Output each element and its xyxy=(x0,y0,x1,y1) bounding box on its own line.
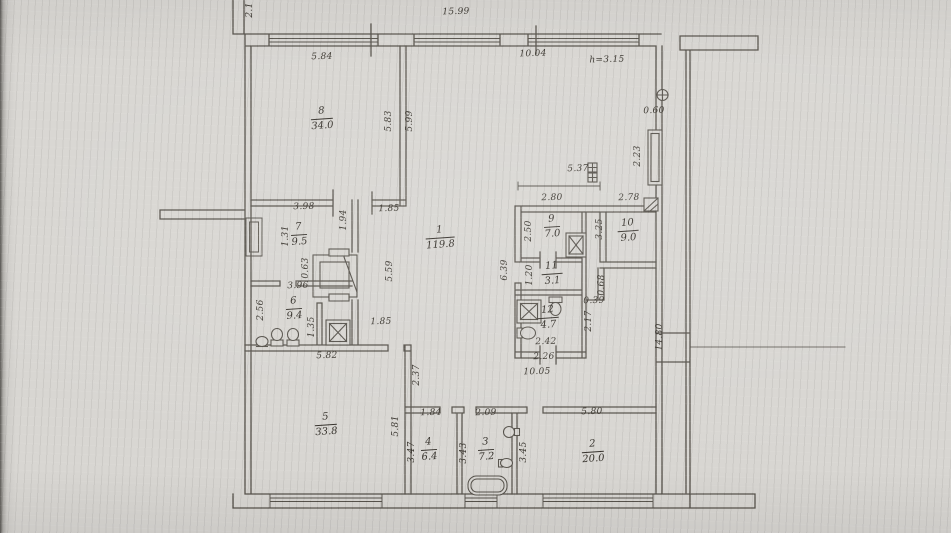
dimension-label: 2.56 xyxy=(256,299,266,320)
room-number: 3 xyxy=(477,437,494,451)
dimension-label: 3.45 xyxy=(519,441,529,462)
dimension-label: 2.26 xyxy=(533,352,555,363)
dimension-label: 1.20 xyxy=(525,264,535,285)
dimension-label: 6.39 xyxy=(500,259,510,280)
dimension-label: 1.31 xyxy=(281,225,291,246)
floorplan-page: 15.992.15.8410.04h=3.150.605.835.992.235… xyxy=(0,0,951,533)
dimension-label: 10.04 xyxy=(519,49,547,60)
labels-layer: 15.992.15.8410.04h=3.150.605.835.992.235… xyxy=(0,0,951,533)
dimension-label: 5.84 xyxy=(311,52,333,63)
room-area: 33.8 xyxy=(315,424,338,438)
room-area: 9.4 xyxy=(286,308,303,322)
dimension-label: 5.83 xyxy=(384,110,394,131)
room-area: 6.4 xyxy=(421,449,438,463)
room-label-1: 1119.8 xyxy=(425,225,455,252)
dimension-label: 1.94 xyxy=(339,209,349,230)
room-label-5: 533.8 xyxy=(314,412,338,438)
dimension-label: 1.85 xyxy=(370,317,392,328)
room-area: 9.0 xyxy=(618,230,640,244)
room-label-6: 69.4 xyxy=(285,296,303,322)
room-label-4: 46.4 xyxy=(420,437,438,463)
room-label-3: 37.2 xyxy=(477,437,495,463)
dimension-label: 1.84 xyxy=(420,408,442,419)
room-area: 34.0 xyxy=(311,118,334,132)
dimension-label: 10.05 xyxy=(523,367,551,378)
dimension-label: 0.39 xyxy=(583,296,605,307)
dimension-label: 1.35 xyxy=(307,316,317,337)
room-label-11: 113.1 xyxy=(541,261,563,287)
room-label-8: 834.0 xyxy=(310,106,334,132)
dimension-label: 2.09 xyxy=(475,408,497,419)
dimension-label: 3.98 xyxy=(293,202,315,213)
dimension-label: h=3.15 xyxy=(589,55,624,66)
room-area: 119.8 xyxy=(426,237,455,251)
dimension-label: 2.1 xyxy=(245,2,255,17)
room-number: 7 xyxy=(290,222,307,236)
room-area: 7.2 xyxy=(478,449,495,463)
room-area: 4.7 xyxy=(538,317,560,331)
room-area: 3.1 xyxy=(542,273,564,287)
dimension-label: 3.47 xyxy=(407,441,417,462)
room-number: 6 xyxy=(285,296,302,310)
room-number: 4 xyxy=(420,437,437,451)
room-area: 20.0 xyxy=(582,451,605,465)
dimension-label: 5.37 xyxy=(567,164,589,175)
room-label-12: 124.7 xyxy=(537,305,559,331)
dimension-label: 3.96 xyxy=(287,281,309,292)
dimension-label: 2.78 xyxy=(618,193,640,204)
dimension-label: 3.25 xyxy=(595,218,605,239)
dimension-label: 2.23 xyxy=(633,145,643,166)
dimension-label: 5.80 xyxy=(581,407,603,418)
room-area: 7.0 xyxy=(544,226,561,240)
dimension-label: 14.80 xyxy=(655,323,665,350)
dimension-label: 0.60 xyxy=(643,106,665,117)
dimension-label: 2.42 xyxy=(535,337,557,348)
dimension-label: 1.85 xyxy=(378,204,400,215)
room-label-7: 79.5 xyxy=(290,222,308,248)
room-area: 9.5 xyxy=(291,234,308,248)
room-label-10: 109.0 xyxy=(617,218,639,244)
dimension-label: 5.99 xyxy=(405,110,415,131)
dimension-label: 5.59 xyxy=(385,260,395,281)
dimension-label: 2.37 xyxy=(412,364,422,385)
dimension-label: 0.68 xyxy=(597,274,607,295)
dimension-label: 2.50 xyxy=(524,220,534,241)
dimension-label: 0.63 xyxy=(301,257,311,278)
dimension-label: 2.80 xyxy=(541,193,563,204)
room-number: 9 xyxy=(543,214,560,228)
room-label-9: 97.0 xyxy=(543,214,561,240)
dimension-label: 2.17 xyxy=(584,310,594,331)
room-label-2: 220.0 xyxy=(581,439,605,465)
dimension-label: 3.43 xyxy=(459,442,469,463)
dimension-label: 5.82 xyxy=(316,351,338,362)
dimension-label: 5.81 xyxy=(391,415,401,436)
dimension-label: 15.99 xyxy=(442,7,470,18)
